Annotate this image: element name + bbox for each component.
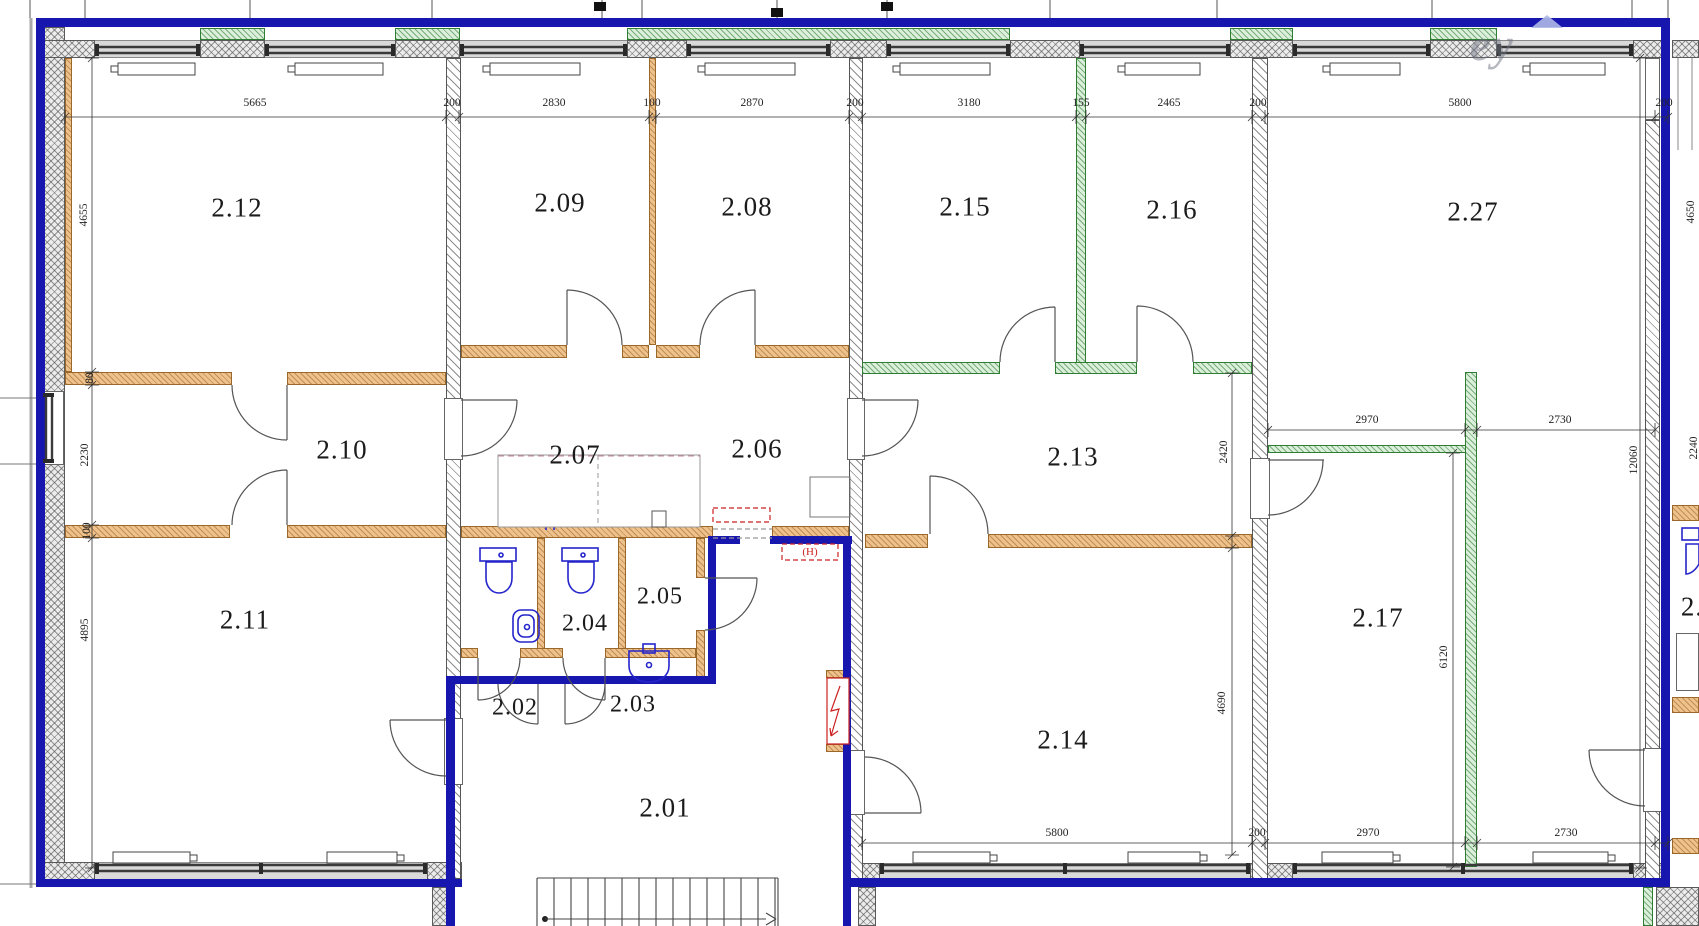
room-label-2.03: 2.03 <box>610 692 656 719</box>
dimension-label: 6120 <box>1438 646 1450 669</box>
watermark-shape <box>1531 15 1563 28</box>
room-label-2.01: 2.01 <box>639 793 690 824</box>
dimension-label: 200 <box>1249 97 1266 109</box>
room-label-2.14: 2.14 <box>1037 725 1088 756</box>
room-label-2.06: 2.06 <box>731 434 782 465</box>
dimension-label: 200 <box>443 97 460 109</box>
room-label-2.15: 2.15 <box>939 192 990 223</box>
room-label-2.17: 2.17 <box>1352 603 1403 634</box>
dimension-label: 2240 <box>1688 437 1699 460</box>
electrical-panel-icon <box>713 508 849 744</box>
room-label-2.13: 2.13 <box>1047 442 1098 473</box>
plan-linework <box>0 0 1699 926</box>
dimension-label: 3180 <box>958 97 981 109</box>
room-label-2.16: 2.16 <box>1146 195 1197 226</box>
dimension-label: 2730 <box>1555 827 1578 839</box>
dimension-label: 5800 <box>1046 827 1069 839</box>
room-label-2.09: 2.09 <box>534 188 585 219</box>
dimension-label: 4690 <box>1216 692 1228 715</box>
room-label-2.07: 2.07 <box>549 440 600 471</box>
dimension-label: 200 <box>1655 97 1672 109</box>
room-label-2.02: 2.02 <box>492 695 538 722</box>
grid-ticks-icon <box>30 0 1668 18</box>
window-glazing <box>43 44 1633 874</box>
logo-watermark: ey <box>1470 18 1515 71</box>
dimension-label: 12060 <box>1628 446 1640 475</box>
dimension-lines <box>61 54 1672 872</box>
room-label-2.10: 2.10 <box>316 435 367 466</box>
dimension-label: 2830 <box>543 97 566 109</box>
dimension-label: 4895 <box>79 619 91 642</box>
dimension-label: 4655 <box>78 204 90 227</box>
room-label-2.12: 2.12 <box>211 193 262 224</box>
room-label-2.04: 2.04 <box>562 611 608 638</box>
dimension-label: 2230 <box>79 444 91 467</box>
room-label-2.: 2. <box>1681 592 1699 623</box>
dimension-label: 200 <box>1248 827 1265 839</box>
dimension-label: 100 <box>643 97 660 109</box>
dimension-label: 5665 <box>244 97 267 109</box>
dimension-label: 2870 <box>741 97 764 109</box>
room-label-2.08: 2.08 <box>721 192 772 223</box>
dimension-label: 80 <box>84 372 96 384</box>
room-label-2.11: 2.11 <box>220 605 270 636</box>
dimension-label: 5800 <box>1449 97 1472 109</box>
dimension-label: 4650 <box>1685 201 1697 224</box>
dimension-label: 2730 <box>1549 414 1572 426</box>
dimension-label: 2970 <box>1357 827 1380 839</box>
shaft-annotation: (H) <box>802 546 817 558</box>
exterior-face-lines <box>0 18 1692 888</box>
room-label-2.05: 2.05 <box>637 584 683 611</box>
dimension-label: 2420 <box>1218 441 1230 464</box>
door-swing-icon <box>232 290 1645 813</box>
floor-plan-canvas: 2.122.092.082.152.162.272.102.072.062.13… <box>0 0 1699 926</box>
dimension-label: 100 <box>81 522 93 539</box>
dimension-label: 2970 <box>1356 414 1379 426</box>
staircase-icon <box>537 878 778 926</box>
dimension-label: 200 <box>846 97 863 109</box>
dimension-label: 2465 <box>1158 97 1181 109</box>
room-label-2.27: 2.27 <box>1447 197 1498 228</box>
dimension-label: 155 <box>1072 97 1089 109</box>
